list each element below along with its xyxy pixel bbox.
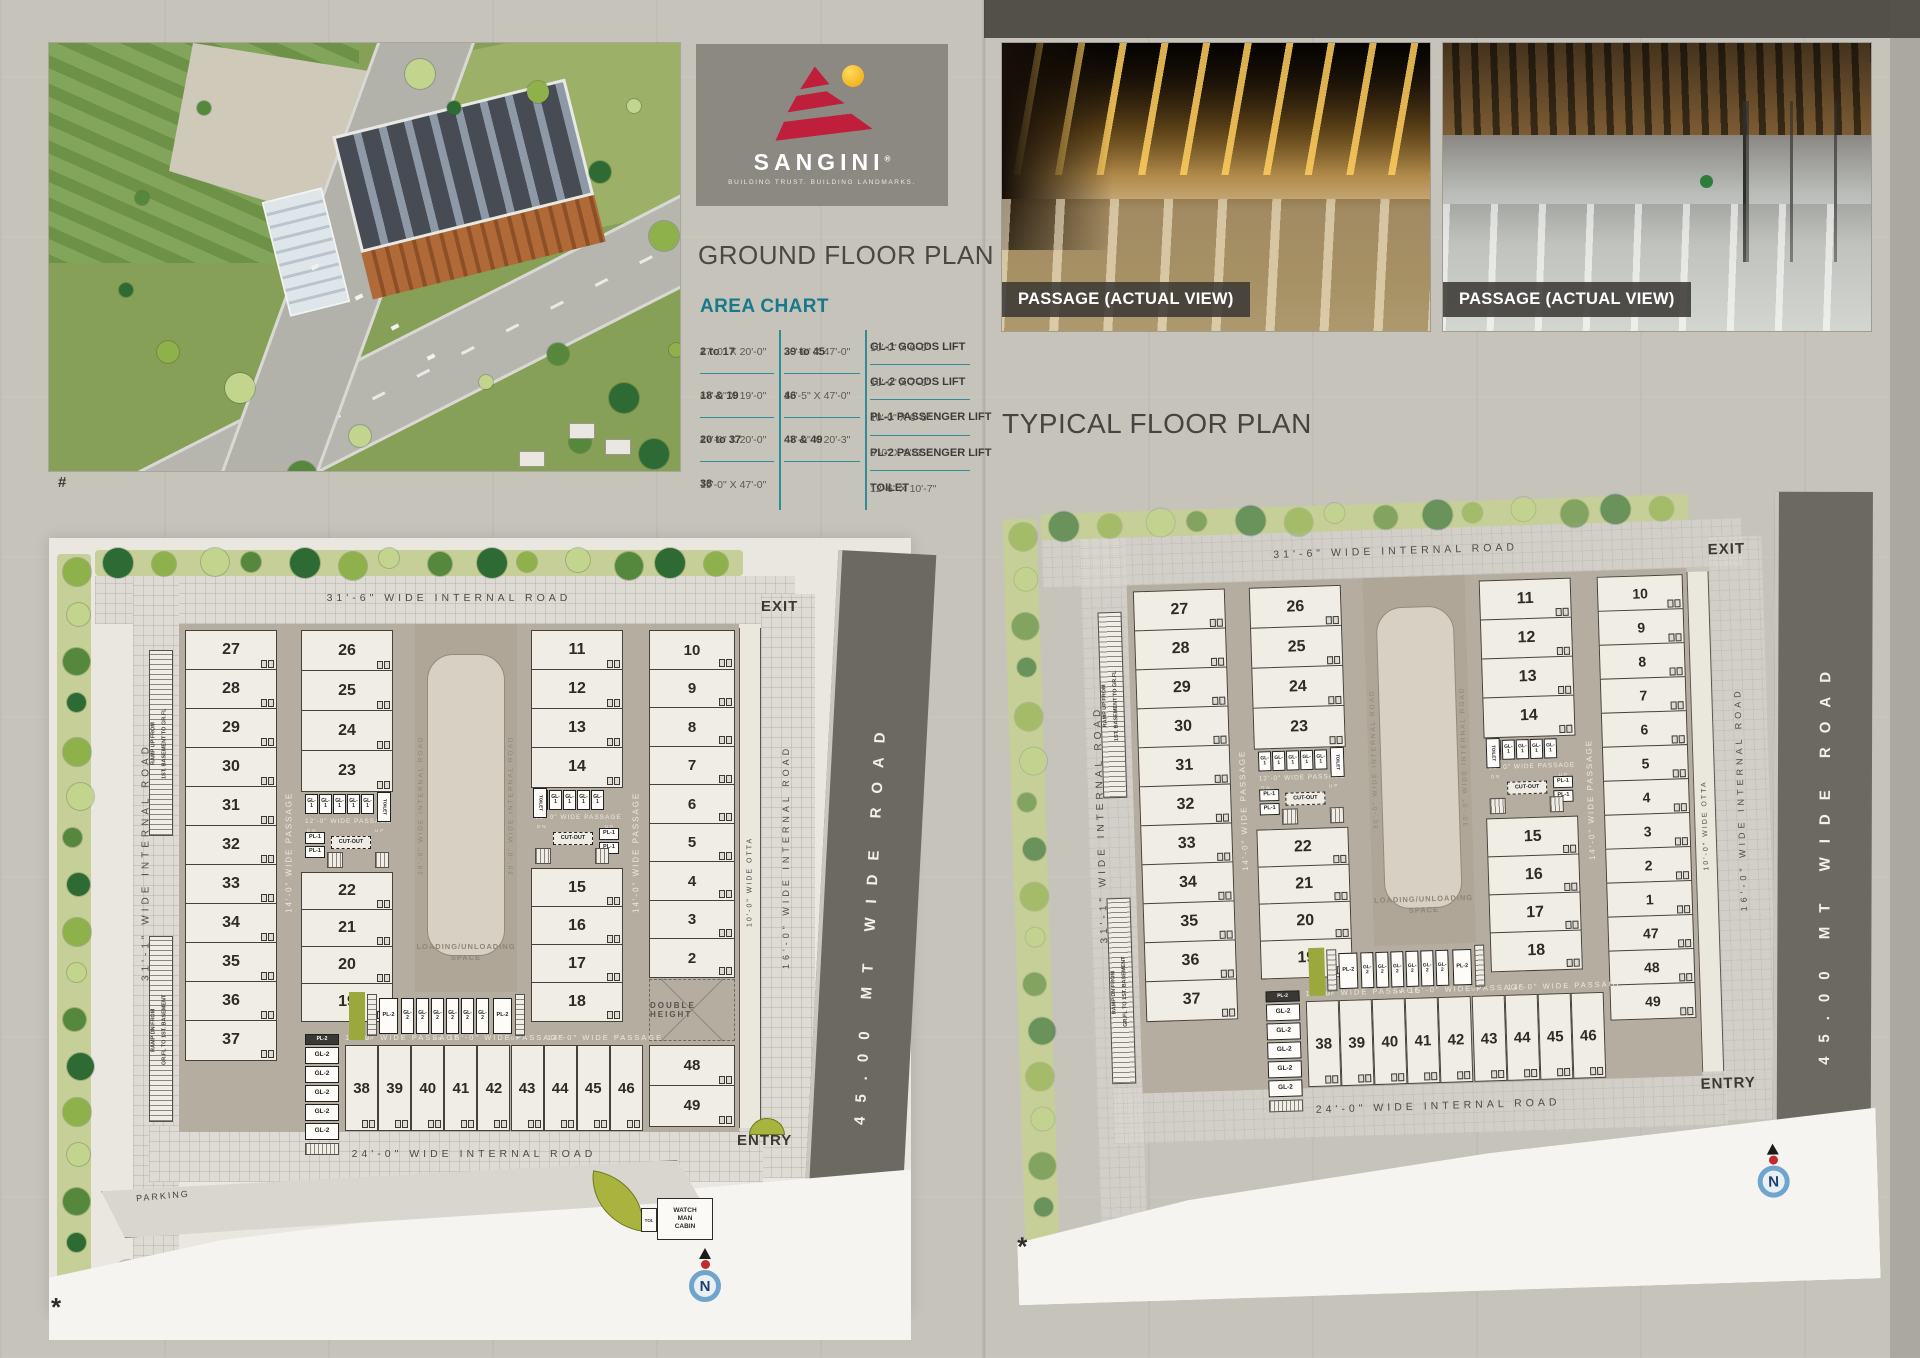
- unit-box: 15: [531, 868, 623, 908]
- washroom-icon: [1667, 599, 1680, 607]
- goods-lift-box: GL-1: [1272, 751, 1286, 771]
- area-chart-title: AREA CHART: [700, 296, 829, 318]
- unit-box: 28: [185, 669, 277, 710]
- road-top-label: 31'-6" WIDE INTERNAL ROAD: [219, 592, 679, 606]
- stair-hatch: [595, 848, 609, 864]
- goods-lift-box: GL-2: [446, 998, 459, 1034]
- washroom-icon: [261, 933, 274, 941]
- passenger-lift-box: PL-1: [305, 832, 325, 844]
- unit-box: 14: [1482, 695, 1575, 738]
- washroom-icon: [1558, 685, 1571, 693]
- tree-icon: [225, 373, 255, 403]
- unit-box: 40: [411, 1045, 444, 1131]
- area-chart-cell-dim: 18'-5" X 47'-0": [784, 390, 850, 402]
- goods-lift-box: GL-1: [1286, 750, 1300, 770]
- tree-icon: [405, 59, 435, 89]
- tree-icon: [67, 1143, 90, 1166]
- unit-box: 32: [1139, 783, 1232, 826]
- cutout-box: CUT-OUT: [553, 832, 593, 845]
- washroom-icon: [561, 1120, 574, 1128]
- washroom-icon: [1216, 813, 1229, 821]
- washroom-icon: [362, 1120, 375, 1128]
- washroom-icon: [719, 890, 732, 898]
- area-chart-cell: 4618'-5" X 47'-0": [784, 374, 860, 418]
- goods-lift-box: GL-2: [1266, 1022, 1301, 1040]
- north-arrow-circle: N: [689, 1270, 721, 1302]
- stair-hatch: [1326, 949, 1337, 991]
- stair-label: UP: [1329, 783, 1341, 789]
- right-edge-strip: [1890, 0, 1920, 1358]
- washroom-icon: [1211, 657, 1224, 665]
- tree-icon: [67, 783, 94, 810]
- goods-lift-box: GL-2: [1268, 1060, 1303, 1078]
- unit-box: 16: [531, 906, 623, 946]
- area-chart-cell-dim: 10'-0" X 7'-0": [870, 377, 931, 389]
- unit-box: 31: [185, 786, 277, 827]
- washroom-icon: [1329, 735, 1342, 743]
- tree-icon: [67, 603, 90, 626]
- washroom-icon: [261, 855, 274, 863]
- goods-lift-box: GL-1: [1544, 738, 1558, 758]
- logo-triangle-icon: [770, 65, 874, 143]
- unit-box: 9: [649, 669, 735, 709]
- goods-lift-box: GL-1: [1530, 739, 1544, 759]
- watchman-cabin-box: WATCHMANCABIN: [657, 1198, 713, 1240]
- green-strip: [1308, 948, 1325, 996]
- loading-court: [1375, 605, 1462, 909]
- north-arrow-icon: [1766, 1143, 1778, 1154]
- washroom-icon: [607, 935, 620, 943]
- tree-icon: [547, 343, 569, 365]
- washroom-icon: [261, 699, 274, 707]
- area-chart-cell: 39 to 4520'-0" X 47'-0": [784, 330, 860, 374]
- goods-lift-box: GL-2: [1267, 1041, 1302, 1059]
- north-arrow-dot: [701, 1260, 710, 1269]
- washroom-icon: [1334, 891, 1347, 899]
- unit-box: 43: [511, 1045, 544, 1131]
- toilet-box: TOILET: [1486, 738, 1501, 768]
- tree-icon: [339, 552, 367, 580]
- unit-box: 43: [1471, 995, 1507, 1082]
- tree-icon: [152, 552, 176, 576]
- washroom-icon: [377, 900, 390, 908]
- washroom-icon: [1333, 854, 1346, 862]
- ground-floor-plan-title: GROUND FLOOR PLAN: [698, 240, 994, 271]
- washroom-icon: [1556, 607, 1569, 615]
- passage-14-label: 14'-0" WIDE PASSAGE: [547, 1033, 647, 1042]
- unit-box: 42: [477, 1045, 510, 1131]
- area-chart-table: 2 to 1747'-0" X 20'-0"18 & 1947'-0" X 19…: [700, 330, 954, 512]
- passenger-lift-box: PL-1: [599, 828, 619, 840]
- goods-lift-box: GL-2: [476, 998, 489, 1034]
- tree-icon: [63, 828, 82, 847]
- goods-lift-box: GL-1: [549, 790, 562, 810]
- washroom-icon: [719, 1116, 732, 1124]
- area-chart-cell: GL-2 GOODS LIFT10'-0" X 7'-0": [870, 365, 970, 400]
- goods-lift-box: GL-2: [305, 1066, 339, 1083]
- unit-box: 2: [649, 938, 735, 978]
- goods-lift-box: GL-2: [1420, 950, 1434, 986]
- unit-box: 41: [1405, 997, 1441, 1084]
- unit-box: 38: [345, 1045, 378, 1131]
- unit-box: 8: [1599, 642, 1686, 680]
- goods-lift-box: GL-1: [577, 790, 590, 810]
- unit-box: 24: [1251, 665, 1344, 709]
- unit-box: 35: [185, 942, 277, 983]
- star-mark: *: [51, 1292, 71, 1320]
- goods-lift-box: GL-1: [305, 794, 318, 814]
- unit-box: 1: [1606, 880, 1693, 918]
- aerial-render-photo: [49, 43, 680, 471]
- goods-lift-box: GL-1: [319, 794, 332, 814]
- unit-box: 7: [649, 746, 735, 786]
- logo-triangle-piece: [796, 64, 829, 89]
- washroom-icon: [1215, 774, 1228, 782]
- unit-box: 41: [444, 1045, 477, 1131]
- stair-hatch: [327, 852, 343, 868]
- goods-lift-box: GL-1: [1300, 750, 1314, 770]
- watchman-cabin-label: MAN: [678, 1215, 693, 1223]
- washroom-icon: [1222, 1008, 1235, 1016]
- washroom-icon: [1672, 735, 1685, 743]
- brochure-page: # SANGINI® BUILDING TRUST. BUILDING LAND…: [0, 0, 1920, 1358]
- passenger-lift-box: PL-1: [1260, 803, 1280, 816]
- unit-box: 30: [1136, 705, 1229, 748]
- goods-lift-box: GL-2: [305, 1104, 339, 1121]
- tree-icon: [67, 693, 86, 712]
- cutout-box: CUT-OUT: [331, 836, 371, 849]
- unit-box: 6: [1601, 710, 1688, 748]
- washroom-icon: [1669, 667, 1682, 675]
- road-label-30: 30'-0" WIDE INTERNAL ROAD: [505, 640, 517, 970]
- unit-box: 45: [1537, 993, 1573, 1080]
- tree-icon: [655, 548, 685, 578]
- stair-hatch: [1474, 945, 1485, 987]
- unit-box: 10: [1597, 574, 1684, 612]
- goods-lift-box: GL-1: [347, 794, 360, 814]
- passage-photo-1: PASSAGE (ACTUAL VIEW): [1002, 43, 1430, 331]
- unit-box: 20: [1259, 901, 1352, 942]
- unit-box: 33: [185, 864, 277, 905]
- washroom-icon: [1212, 696, 1225, 704]
- tree-icon: [67, 1233, 86, 1252]
- washroom-icon: [461, 1120, 474, 1128]
- area-chart-cell: 18 & 1947'-0" X 19'-0": [700, 374, 774, 418]
- unit-box: 39: [1339, 999, 1375, 1086]
- washroom-icon: [261, 816, 274, 824]
- area-chart-column: GL-1 GOODS LIFT10'-0" X 6'-0"GL-2 GOODS …: [870, 330, 970, 512]
- stair-label: DN: [1491, 774, 1503, 780]
- tree-icon: [649, 221, 679, 251]
- unit-box: 26: [1249, 585, 1342, 629]
- unit-box: 3: [649, 900, 735, 940]
- tree-icon: [566, 548, 590, 572]
- unit-box: 5: [649, 823, 735, 863]
- goods-lift-box: GL-2: [1375, 952, 1389, 988]
- goods-lift-box: GL-1: [1314, 749, 1328, 769]
- passenger-lift-box: PL-2: [379, 998, 398, 1034]
- unit-box: 46: [610, 1045, 643, 1131]
- washroom-icon: [1563, 844, 1576, 852]
- washroom-icon: [1557, 1068, 1570, 1076]
- tree-icon: [704, 552, 728, 576]
- unit-box: 22: [301, 872, 393, 911]
- unit-box: 42: [1438, 996, 1474, 1083]
- aerial-house: [569, 423, 595, 439]
- watchman-cabin: WATCHMANCABINTOI.: [641, 1198, 715, 1244]
- area-chart-cell-dim: 47'-0" X 20'-3": [784, 434, 850, 446]
- unit-box: 23: [1253, 705, 1346, 749]
- washroom-icon: [528, 1120, 541, 1128]
- unit-box: 25: [1250, 625, 1343, 669]
- passenger-lift-box: PL-2: [493, 998, 512, 1034]
- unit-box: 12: [531, 669, 623, 710]
- washroom-icon: [261, 1050, 274, 1058]
- unit-box: 11: [531, 630, 623, 671]
- stair-hatch: [367, 994, 377, 1036]
- unit-box: 38: [1306, 1000, 1342, 1087]
- washroom-icon: [719, 736, 732, 744]
- passage-12-label: 12'-0" WIDE PASSAGE: [535, 814, 621, 823]
- unit-box: 26: [301, 630, 393, 672]
- ground-floor-plan: 45.00 MT WIDE ROAD30'-0" WIDE INTERNAL R…: [49, 512, 911, 1342]
- goods-lift-box: GL-2: [431, 998, 444, 1034]
- stair-label: DN: [537, 824, 549, 830]
- unit-box: 32: [185, 825, 277, 866]
- brand-registered-mark: ®: [884, 154, 890, 163]
- goods-lift-box: GL-2: [1435, 950, 1449, 986]
- brand-tagline: BUILDING TRUST. BUILDING LANDMARKS.: [728, 179, 916, 186]
- unit-box: 20: [301, 946, 393, 985]
- unit-box: 13: [1481, 656, 1574, 699]
- unit-box: 36: [1144, 939, 1237, 982]
- unit-box: 12: [1480, 617, 1573, 660]
- passenger-lift-box: PL-2: [1265, 990, 1299, 1002]
- washroom-icon: [1559, 724, 1572, 732]
- unit-box: 36: [185, 981, 277, 1022]
- goods-lift-box: GL-2: [305, 1123, 339, 1140]
- unit-box: 27: [1133, 589, 1226, 632]
- logo-sun-icon: [842, 65, 864, 87]
- washroom-icon: [1567, 958, 1580, 966]
- unit-box: 13: [531, 708, 623, 749]
- tree-icon: [157, 341, 179, 363]
- washroom-icon: [1590, 1067, 1603, 1075]
- unit-box: 29: [1135, 666, 1228, 709]
- area-chart-cell-dim: 12'-6" X 10'-7": [870, 483, 936, 495]
- washroom-icon: [719, 1076, 732, 1084]
- cutout-box: CUT-OUT: [1285, 791, 1325, 805]
- north-arrow-icon: [699, 1248, 711, 1259]
- area-chart-cell: TOILET12'-6" X 10'-7": [870, 471, 970, 506]
- goods-lift-box: GL-2: [461, 998, 474, 1034]
- washroom-icon: [494, 1120, 507, 1128]
- aerial-car: [391, 323, 400, 330]
- area-chart-divider: [779, 330, 781, 510]
- washroom-icon: [719, 852, 732, 860]
- stair-hatch: [1269, 1099, 1303, 1112]
- cutout-box: CUT-OUT: [1507, 780, 1547, 794]
- unit-box: 39: [378, 1045, 411, 1131]
- unit-box: 15: [1486, 816, 1579, 858]
- unit-box: 23: [301, 750, 393, 792]
- washroom-icon: [719, 775, 732, 783]
- area-chart-cell-dim: 47'-0" X 19'-0": [700, 390, 766, 402]
- washroom-icon: [594, 1120, 607, 1128]
- passage-photo-caption: PASSAGE (ACTUAL VIEW): [1002, 282, 1250, 317]
- washroom-icon: [261, 777, 274, 785]
- unit-box: 11: [1479, 578, 1572, 621]
- unit-box: 6: [649, 784, 735, 824]
- washroom-icon: [1458, 1071, 1471, 1079]
- goods-lift-box: GL-1: [1516, 739, 1530, 759]
- washroom-icon: [627, 1120, 640, 1128]
- washroom-icon: [1678, 939, 1691, 947]
- goods-lift-box: GL-2: [401, 998, 414, 1034]
- tree-icon: [63, 648, 90, 675]
- washroom-icon: [1668, 633, 1681, 641]
- unit-box: 17: [531, 944, 623, 984]
- passage-15-label: 15'-0" WIDE PASSAGE: [449, 1033, 549, 1042]
- stair-hatch: [1282, 808, 1298, 824]
- washroom-icon: [377, 937, 390, 945]
- road-label-30: 30'-0" WIDE INTERNAL ROAD: [415, 640, 427, 970]
- tree-icon: [447, 101, 461, 115]
- road-16-label: 16'-0" WIDE INTERNAL ROAD: [771, 682, 801, 1032]
- unit-box: 35: [1143, 900, 1236, 943]
- concrete-seam: [982, 0, 985, 1358]
- logo-triangle-piece: [785, 88, 845, 112]
- washroom-icon: [1676, 871, 1689, 879]
- road-45mt-label: 45.00 MT WIDE ROAD: [1815, 658, 1833, 1065]
- unit-box: 33: [1140, 822, 1233, 865]
- toilet-box: TOI.: [641, 1208, 657, 1232]
- tree-icon: [63, 1098, 91, 1126]
- exit-label: EXIT: [761, 598, 821, 616]
- unit-box: 48: [649, 1045, 735, 1087]
- ramp-label: GR.FL TO 1ST. BASEMENT: [158, 944, 171, 1116]
- washroom-icon: [719, 698, 732, 706]
- tree-icon: [290, 548, 320, 578]
- washroom-icon: [1326, 616, 1339, 624]
- tree-icon: [627, 99, 641, 113]
- washroom-icon: [1210, 618, 1223, 626]
- stair-hatch: [515, 994, 525, 1036]
- tree-icon: [609, 383, 639, 413]
- otta-label: 10'-0" WIDE OTTA: [739, 762, 761, 1002]
- unit-box: 44: [544, 1045, 577, 1131]
- goods-lift-box: GL-1: [1502, 739, 1516, 759]
- washroom-icon: [1557, 646, 1570, 654]
- washroom-icon: [607, 738, 620, 746]
- tree-icon: [67, 963, 86, 982]
- washroom-icon: [377, 701, 390, 709]
- washroom-icon: [428, 1120, 441, 1128]
- area-chart-divider: [865, 330, 867, 510]
- stair-hatch: [1549, 796, 1563, 812]
- hash-mark: #: [58, 474, 66, 491]
- washroom-icon: [1680, 1007, 1693, 1015]
- area-chart-cell-dim: 10'-0" X 6'-0": [870, 342, 931, 354]
- washroom-icon: [1671, 701, 1684, 709]
- washroom-icon: [1491, 1070, 1504, 1078]
- washroom-icon: [261, 894, 274, 902]
- tree-icon: [197, 101, 211, 115]
- unit-box: 5: [1602, 744, 1689, 782]
- logo-triangle-piece: [773, 111, 872, 141]
- unit-box: 9: [1598, 608, 1685, 646]
- washroom-icon: [607, 897, 620, 905]
- washroom-icon: [607, 777, 620, 785]
- stair-hatch: [1489, 798, 1505, 814]
- unit-box: 14: [531, 747, 623, 788]
- washroom-icon: [719, 659, 732, 667]
- area-chart-cell-dim: 47'-0" X 20'-0": [700, 434, 766, 446]
- unit-box: 28: [1134, 628, 1227, 671]
- unit-box: 17: [1489, 891, 1582, 933]
- washroom-icon: [1565, 920, 1578, 928]
- green-border: [95, 550, 743, 576]
- washroom-icon: [395, 1120, 408, 1128]
- washroom-icon: [1524, 1069, 1537, 1077]
- passenger-lift-box: PL-2: [1452, 949, 1472, 986]
- unit-box: 27: [185, 630, 277, 671]
- double-height-area: DOUBLE HEIGHT: [649, 979, 735, 1041]
- area-chart-cell-dim: 10'-0" X 6'-0": [870, 412, 931, 424]
- passenger-lift-box: PL-2: [305, 1034, 339, 1045]
- washroom-icon: [1218, 891, 1231, 899]
- tree-icon: [477, 548, 507, 578]
- unit-box: 44: [1504, 994, 1540, 1081]
- washroom-icon: [261, 972, 274, 980]
- ramp-label: 1ST. BASEMENT TO GR.FL: [158, 658, 171, 830]
- stair-hatch: [375, 852, 389, 868]
- area-chart-cell-dim: 6'-0" X 8'-9": [870, 447, 925, 459]
- area-chart-cell-dim: 47'-0" X 20'-0": [700, 346, 766, 358]
- unit-box: 18: [531, 982, 623, 1022]
- goods-lift-box: GL-2: [1360, 952, 1374, 988]
- area-chart-cell: 20 to 3747'-0" X 20'-0": [700, 418, 774, 462]
- tree-icon: [63, 1008, 86, 1031]
- washroom-icon: [377, 781, 390, 789]
- washroom-icon: [1673, 769, 1686, 777]
- area-chart-cell: PL-1 PASSENGER LIFT10'-0" X 6'-0": [870, 400, 970, 435]
- washroom-icon: [1675, 837, 1688, 845]
- passage-14-label: 14'-0" WIDE PASSAGE: [277, 712, 301, 992]
- unit-box: 18: [1490, 929, 1583, 971]
- unit-box: 34: [1141, 861, 1234, 904]
- area-chart-cell: 48 & 4947'-0" X 20'-3": [784, 418, 860, 462]
- washroom-icon: [607, 660, 620, 668]
- washroom-icon: [1674, 803, 1687, 811]
- loading-court: [427, 654, 505, 956]
- tree-icon: [241, 552, 261, 572]
- unit-box: 7: [1600, 676, 1687, 714]
- unit-box: 4: [649, 861, 735, 901]
- unit-box: 34: [185, 903, 277, 944]
- loading-label: SPACE: [399, 953, 533, 963]
- tree-icon: [349, 425, 371, 447]
- washroom-icon: [719, 929, 732, 937]
- goods-lift-box: GL-1: [333, 794, 346, 814]
- unit-box: 24: [301, 710, 393, 752]
- unit-box: 31: [1138, 744, 1231, 787]
- goods-lift-box: GL-1: [591, 790, 604, 810]
- passenger-lift-box: PL-1: [1259, 789, 1279, 802]
- washroom-icon: [607, 1011, 620, 1019]
- tree-icon: [428, 552, 452, 576]
- tree-icon: [589, 161, 611, 183]
